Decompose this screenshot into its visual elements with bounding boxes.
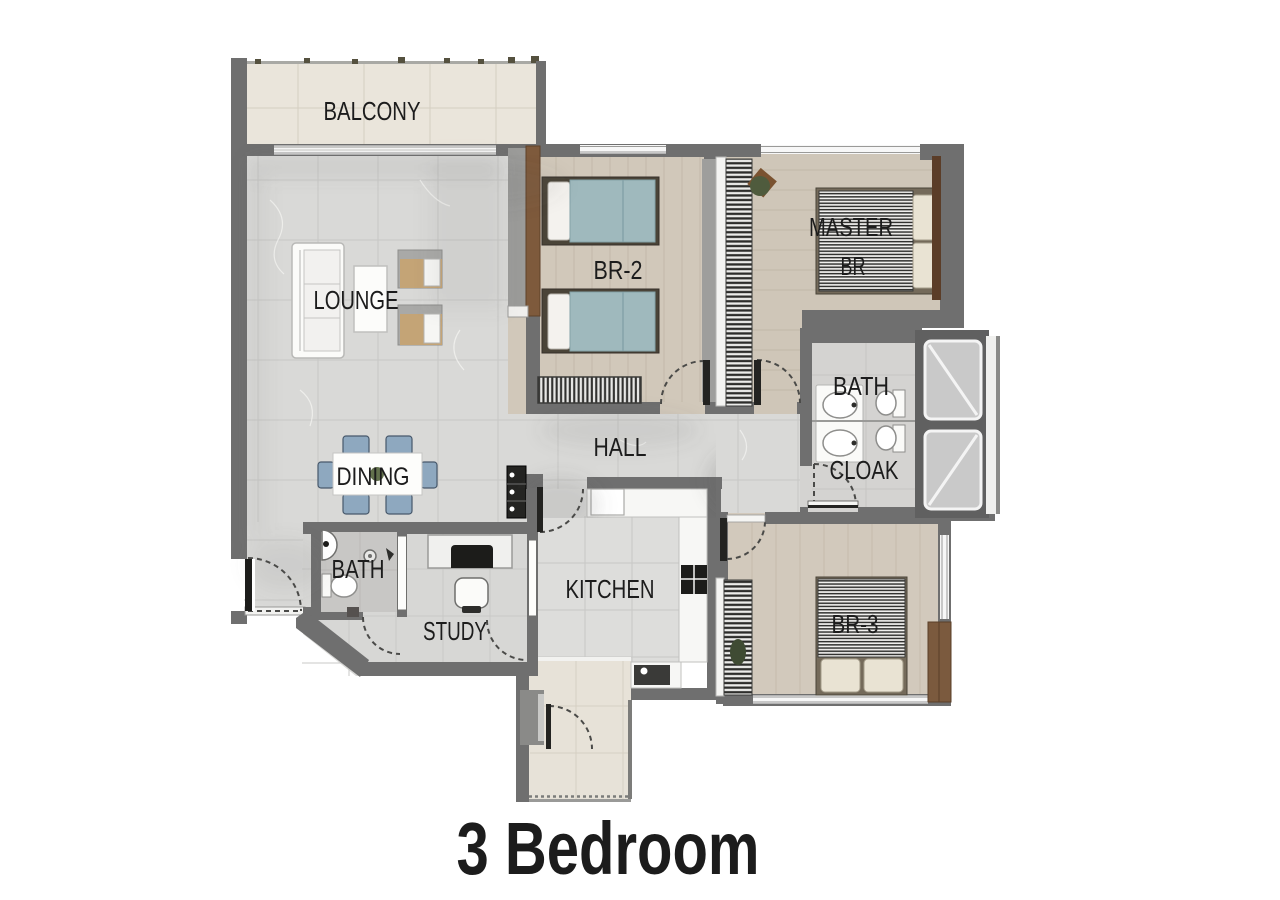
svg-text:BATH: BATH (833, 371, 889, 401)
svg-text:BATH: BATH (332, 554, 385, 584)
svg-text:HALL: HALL (594, 432, 647, 462)
svg-text:BR-3: BR-3 (832, 609, 879, 639)
svg-text:MASTER: MASTER (809, 212, 893, 242)
svg-text:BALCONY: BALCONY (324, 96, 421, 126)
svg-text:STUDY: STUDY (423, 616, 487, 646)
svg-text:BR: BR (841, 251, 866, 281)
svg-text:DINING: DINING (337, 463, 410, 491)
svg-text:LOUNGE: LOUNGE (314, 285, 399, 315)
svg-text:BR-2: BR-2 (594, 255, 643, 285)
svg-text:KITCHEN: KITCHEN (566, 574, 655, 604)
svg-text:3 Bedroom: 3 Bedroom (457, 807, 760, 890)
svg-text:CLOAK: CLOAK (830, 455, 900, 485)
